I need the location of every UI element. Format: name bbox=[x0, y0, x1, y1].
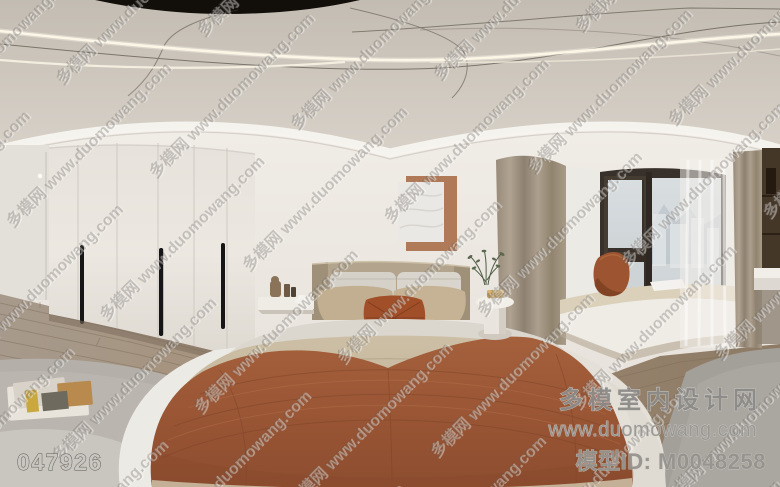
svg-text:多模室内设计网: 多模室内设计网 bbox=[559, 386, 762, 414]
svg-text:047926: 047926 bbox=[17, 449, 103, 475]
svg-text:模型ID: M0048258: 模型ID: M0048258 bbox=[576, 449, 766, 474]
svg-text:www.duomowang.com: www.duomowang.com bbox=[547, 419, 757, 441]
